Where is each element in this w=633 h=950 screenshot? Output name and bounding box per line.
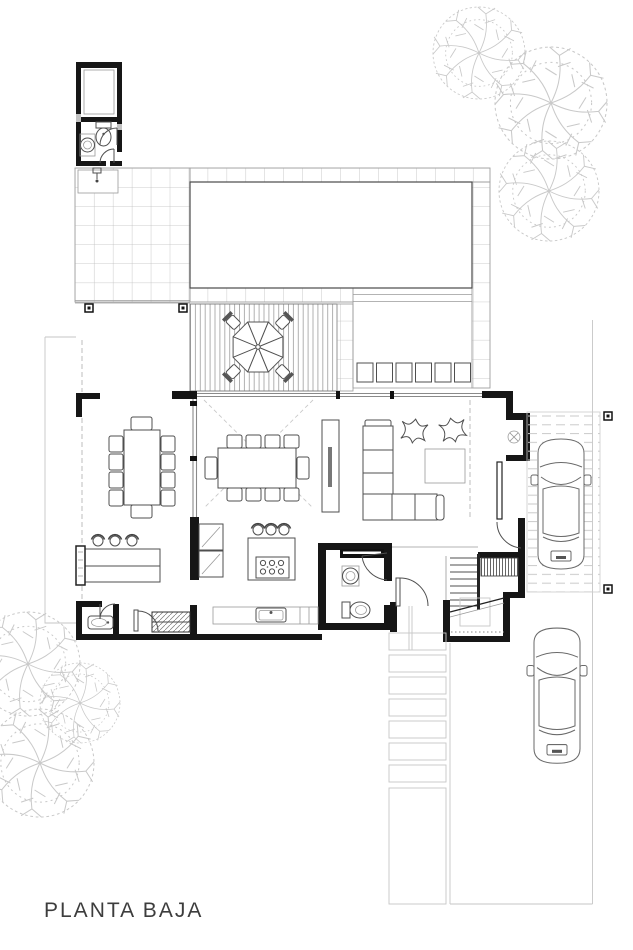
tv-console	[322, 420, 339, 512]
powder-room-sink	[342, 566, 359, 586]
trees-bottom-left	[0, 612, 120, 817]
powder-room-toilet	[342, 602, 370, 618]
sun-loungers	[357, 363, 471, 382]
floor-plan-svg	[0, 0, 633, 950]
kitchen-island-cooktop	[248, 524, 295, 580]
driveway	[450, 628, 593, 904]
annex-door-arc	[100, 149, 114, 163]
entry	[497, 431, 521, 548]
pouf	[438, 416, 468, 445]
hall-door	[396, 578, 428, 606]
patio-umbrella	[222, 311, 294, 383]
entry-closet	[508, 431, 520, 443]
terrace-dining-table	[109, 417, 175, 518]
entry-door-arc	[497, 522, 521, 548]
swimming-pool	[190, 182, 472, 288]
driveway-car	[527, 628, 587, 763]
coffee-table	[425, 449, 465, 483]
laundry	[134, 610, 190, 632]
annex-sink	[80, 134, 95, 156]
living-room	[322, 416, 468, 520]
bar-counter	[76, 535, 160, 585]
sliding-glass-wall	[197, 391, 482, 399]
powder-room	[340, 549, 387, 618]
powder-door-arc	[362, 556, 387, 580]
paver-walkway	[389, 633, 446, 904]
patio-posts	[85, 304, 187, 312]
carport-car	[531, 439, 591, 569]
outdoor-wc-annex	[76, 62, 122, 193]
guest-bathroom	[88, 604, 115, 629]
carport	[527, 412, 612, 593]
pouf	[399, 417, 428, 444]
deck-tile-strip	[337, 304, 353, 391]
glass-partition	[190, 399, 197, 517]
floor-plan-sheet: PLANTA BAJA	[0, 0, 633, 950]
refrigerator	[199, 524, 223, 577]
kitchen-sink-counter	[213, 607, 318, 624]
entry-door-leaf	[497, 462, 502, 519]
outdoor-sink-counter	[78, 168, 118, 193]
page-title: PLANTA BAJA	[44, 899, 203, 923]
